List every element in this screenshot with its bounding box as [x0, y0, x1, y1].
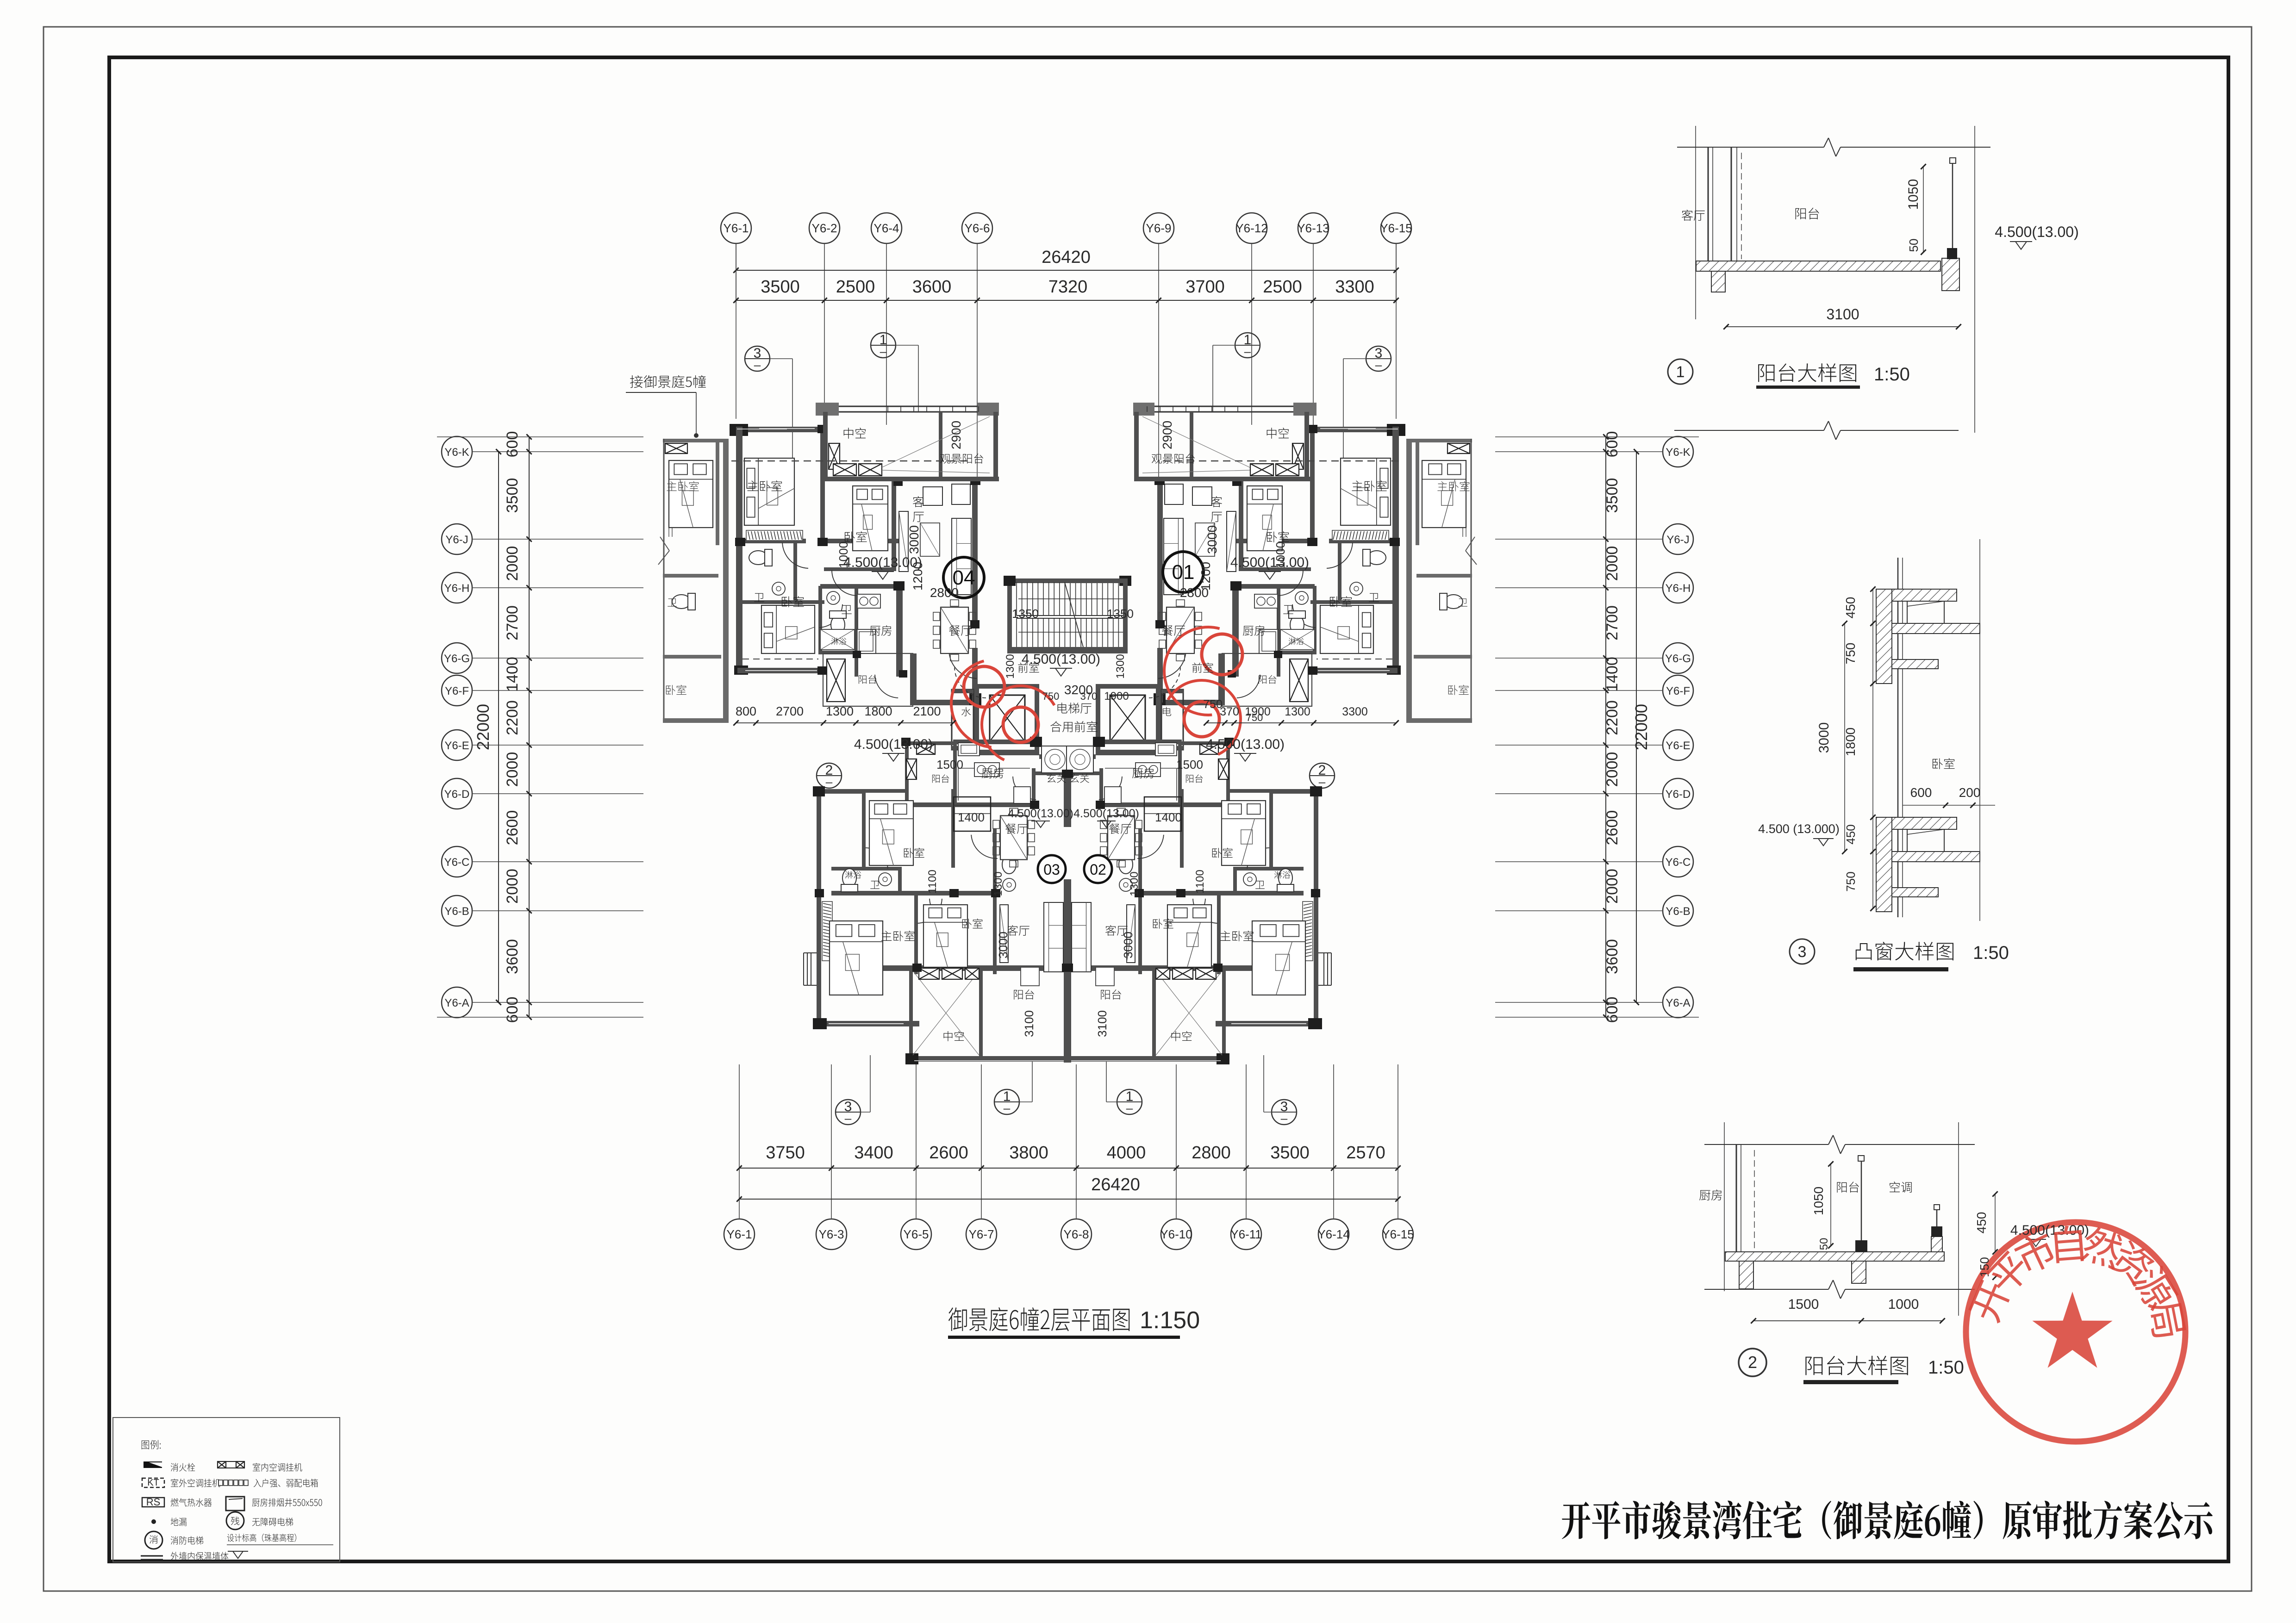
svg-text:2600: 2600 [1603, 810, 1621, 846]
svg-text:Y6-5: Y6-5 [904, 1227, 929, 1241]
svg-text:2000: 2000 [504, 752, 521, 787]
svg-text:1000: 1000 [1888, 1297, 1919, 1312]
svg-text:–: – [754, 358, 761, 372]
svg-text:Y6-D: Y6-D [444, 788, 470, 801]
svg-text:1500: 1500 [1176, 758, 1203, 771]
svg-text:4.500(13.00): 4.500(13.00) [854, 737, 933, 752]
svg-text:Y6-2: Y6-2 [812, 221, 837, 235]
svg-text:2000: 2000 [1603, 752, 1621, 787]
svg-text:2000: 2000 [1603, 869, 1621, 904]
svg-text:RS: RS [146, 1496, 161, 1508]
svg-text:1400: 1400 [504, 657, 521, 692]
svg-text:1500: 1500 [936, 758, 963, 771]
svg-text:3100: 3100 [1022, 1010, 1036, 1037]
svg-text:1350: 1350 [1012, 607, 1039, 621]
svg-text:Y6-A: Y6-A [444, 997, 469, 1009]
svg-text:750: 750 [1042, 690, 1060, 702]
svg-text:1:150: 1:150 [1140, 1307, 1200, 1334]
svg-text:–: – [826, 775, 833, 789]
svg-text:2000: 2000 [1603, 546, 1621, 581]
svg-text:1300: 1300 [992, 871, 1004, 896]
svg-text:Y6-D: Y6-D [1666, 788, 1691, 801]
svg-text:2200: 2200 [504, 700, 521, 735]
svg-text:Y6-H: Y6-H [1666, 582, 1691, 595]
svg-text:2000: 2000 [504, 869, 521, 904]
svg-text:Y6-1: Y6-1 [727, 1227, 752, 1241]
svg-text:26420: 26420 [1042, 248, 1091, 267]
svg-text:2500: 2500 [1263, 277, 1302, 297]
svg-text:1050: 1050 [1906, 179, 1921, 210]
svg-text:370: 370 [1220, 705, 1239, 718]
svg-text:1:50: 1:50 [1928, 1357, 1964, 1378]
svg-text:02: 02 [1090, 861, 1106, 878]
svg-text:370: 370 [1080, 690, 1098, 702]
svg-text:22000: 22000 [474, 704, 493, 750]
svg-text:450: 450 [1974, 1212, 1989, 1234]
svg-text:1300: 1300 [1004, 654, 1017, 678]
svg-text:3300: 3300 [1342, 705, 1368, 718]
svg-text:1:50: 1:50 [1973, 943, 2009, 963]
svg-text:Y6-K: Y6-K [1666, 446, 1690, 459]
svg-text:2700: 2700 [776, 704, 804, 718]
svg-text:200: 200 [1959, 785, 1981, 800]
svg-text:3100: 3100 [1826, 306, 1859, 323]
svg-text:750: 750 [1844, 871, 1858, 891]
svg-text:2700: 2700 [1603, 605, 1621, 640]
svg-text:Y6-C: Y6-C [1666, 856, 1691, 869]
svg-text:–: – [845, 1111, 852, 1125]
svg-text:3300: 3300 [1335, 277, 1374, 297]
svg-text:1900: 1900 [1245, 705, 1271, 718]
svg-text:4.500(13.00): 4.500(13.00) [1230, 555, 1309, 570]
svg-text:Y6-A: Y6-A [1666, 997, 1690, 1009]
svg-text:–: – [880, 344, 887, 358]
svg-text:–: – [1126, 1101, 1133, 1115]
svg-text:KT: KT [147, 1478, 159, 1488]
svg-text:Y6-3: Y6-3 [819, 1227, 844, 1241]
svg-text:600: 600 [504, 997, 521, 1023]
svg-text:03: 03 [1043, 861, 1060, 878]
svg-text:3500: 3500 [761, 277, 800, 297]
svg-text:3700: 3700 [1185, 277, 1225, 297]
svg-text:1800: 1800 [864, 704, 892, 718]
svg-text:2700: 2700 [504, 605, 521, 640]
svg-text:2100: 2100 [913, 704, 941, 718]
svg-text:2200: 2200 [1603, 700, 1621, 735]
svg-text:750: 750 [1843, 643, 1858, 665]
svg-text:Y6-B: Y6-B [1666, 905, 1690, 918]
svg-text:Y6-11: Y6-11 [1230, 1227, 1261, 1241]
svg-text:50: 50 [1818, 1238, 1830, 1250]
svg-text:3800: 3800 [1009, 1143, 1048, 1163]
svg-text:3750: 3750 [766, 1143, 805, 1163]
svg-text:Y6-B: Y6-B [444, 905, 469, 918]
svg-text:3000: 3000 [1205, 525, 1219, 554]
svg-text:4.500(13.00): 4.500(13.00) [1206, 737, 1285, 752]
svg-text:3000: 3000 [907, 525, 921, 554]
svg-text:3500: 3500 [504, 478, 521, 513]
svg-text:Y6-8: Y6-8 [1064, 1227, 1089, 1241]
svg-text:22000: 22000 [1632, 704, 1651, 750]
svg-text:2000: 2000 [504, 546, 521, 581]
svg-text:Y6-F: Y6-F [445, 685, 469, 697]
svg-text:Y6-K: Y6-K [444, 446, 469, 459]
svg-text:Y6-12: Y6-12 [1235, 221, 1267, 235]
svg-text:3000: 3000 [996, 932, 1010, 958]
svg-text:600: 600 [1603, 997, 1621, 1023]
svg-text:3600: 3600 [1603, 939, 1621, 974]
svg-text:3100: 3100 [1095, 1010, 1109, 1037]
svg-text:600: 600 [1603, 431, 1621, 458]
svg-text:4.500(13.00): 4.500(13.00) [843, 555, 922, 570]
svg-text:Y6-H: Y6-H [444, 582, 470, 595]
svg-text:1100: 1100 [926, 870, 939, 894]
svg-text:1800: 1800 [1843, 728, 1858, 756]
svg-text:4.500(13.00): 4.500(13.00) [1073, 807, 1139, 820]
svg-text:Y6-15: Y6-15 [1382, 1227, 1414, 1241]
svg-text:Y6-4: Y6-4 [874, 221, 899, 235]
svg-text:Y6-E: Y6-E [444, 740, 469, 752]
svg-text:1300: 1300 [1285, 705, 1310, 718]
svg-text:Y6-G: Y6-G [1665, 653, 1691, 665]
svg-text:2800: 2800 [1180, 585, 1209, 600]
svg-text:2: 2 [1748, 1353, 1757, 1372]
svg-text:2800: 2800 [1192, 1143, 1231, 1163]
svg-text:2900: 2900 [1160, 421, 1174, 449]
svg-text:600: 600 [504, 431, 521, 458]
svg-text:3600: 3600 [504, 939, 521, 974]
svg-text:Y6-J: Y6-J [1666, 534, 1689, 546]
svg-text:Y6-10: Y6-10 [1160, 1227, 1192, 1241]
svg-text:2800: 2800 [930, 585, 959, 600]
svg-text:2570: 2570 [1346, 1143, 1385, 1163]
svg-text:800: 800 [736, 704, 756, 718]
svg-text:2500: 2500 [836, 277, 875, 297]
svg-text:Y6-E: Y6-E [1666, 740, 1690, 752]
svg-text:Y6-9: Y6-9 [1146, 221, 1172, 235]
svg-text:50: 50 [1907, 239, 1921, 252]
svg-text:1400: 1400 [958, 810, 985, 824]
svg-text:1400: 1400 [1155, 810, 1182, 824]
svg-text:–: – [1244, 344, 1251, 358]
svg-text:4.500(13.00): 4.500(13.00) [1008, 807, 1073, 820]
svg-text:1400: 1400 [1603, 657, 1621, 692]
svg-text:4.500 (13.000): 4.500 (13.000) [1758, 822, 1840, 836]
svg-text:4.500(13.00): 4.500(13.00) [1022, 652, 1100, 667]
svg-text:1500: 1500 [1788, 1297, 1819, 1312]
svg-text:1350: 1350 [1107, 607, 1134, 621]
svg-text:Y6-15: Y6-15 [1380, 221, 1412, 235]
svg-text:3400: 3400 [854, 1143, 893, 1163]
svg-text:2600: 2600 [929, 1143, 968, 1163]
svg-text:1050: 1050 [1811, 1187, 1826, 1215]
svg-text:Y6-J: Y6-J [445, 534, 468, 546]
svg-text:2900: 2900 [949, 421, 963, 449]
svg-text:1300: 1300 [826, 704, 854, 718]
svg-text:Y6-6: Y6-6 [965, 221, 990, 235]
svg-text:–: – [1281, 1111, 1288, 1125]
svg-text:4.500(13.00): 4.500(13.00) [1995, 224, 2078, 240]
svg-text:600: 600 [1910, 785, 1932, 800]
svg-text:3000: 3000 [1121, 932, 1135, 958]
svg-text:Y6-G: Y6-G [444, 653, 470, 665]
svg-text:–: – [1375, 358, 1382, 372]
svg-text:1:50: 1:50 [1874, 364, 1910, 385]
svg-text:1300: 1300 [1114, 654, 1127, 678]
svg-text:1300: 1300 [1128, 871, 1141, 896]
svg-text:4.500(13.00): 4.500(13.00) [2010, 1223, 2089, 1238]
svg-text:150: 150 [1978, 1257, 1991, 1277]
svg-text:450: 450 [1843, 597, 1858, 619]
svg-text:3500: 3500 [1270, 1143, 1310, 1163]
svg-text:1: 1 [1676, 363, 1685, 381]
svg-text:450: 450 [1844, 824, 1858, 844]
svg-text:4000: 4000 [1107, 1143, 1146, 1163]
svg-text:–: – [1004, 1101, 1011, 1115]
svg-text:01: 01 [1172, 561, 1195, 584]
svg-text:26420: 26420 [1091, 1175, 1140, 1194]
svg-text:Y6-7: Y6-7 [969, 1227, 994, 1241]
svg-text:Y6-13: Y6-13 [1297, 221, 1329, 235]
svg-text:Y6-F: Y6-F [1666, 685, 1690, 697]
svg-text:7320: 7320 [1048, 277, 1088, 297]
svg-text:3600: 3600 [912, 277, 952, 297]
svg-text:Y6-1: Y6-1 [724, 221, 749, 235]
svg-text:2600: 2600 [504, 810, 521, 846]
svg-text:Y6-14: Y6-14 [1317, 1227, 1349, 1241]
svg-text:1100: 1100 [1194, 870, 1206, 894]
svg-text:1900: 1900 [1104, 690, 1129, 703]
svg-text:3000: 3000 [1816, 722, 1832, 753]
svg-text:3: 3 [1798, 943, 1807, 961]
svg-text:3500: 3500 [1603, 478, 1621, 513]
svg-text:Y6-C: Y6-C [444, 856, 470, 869]
